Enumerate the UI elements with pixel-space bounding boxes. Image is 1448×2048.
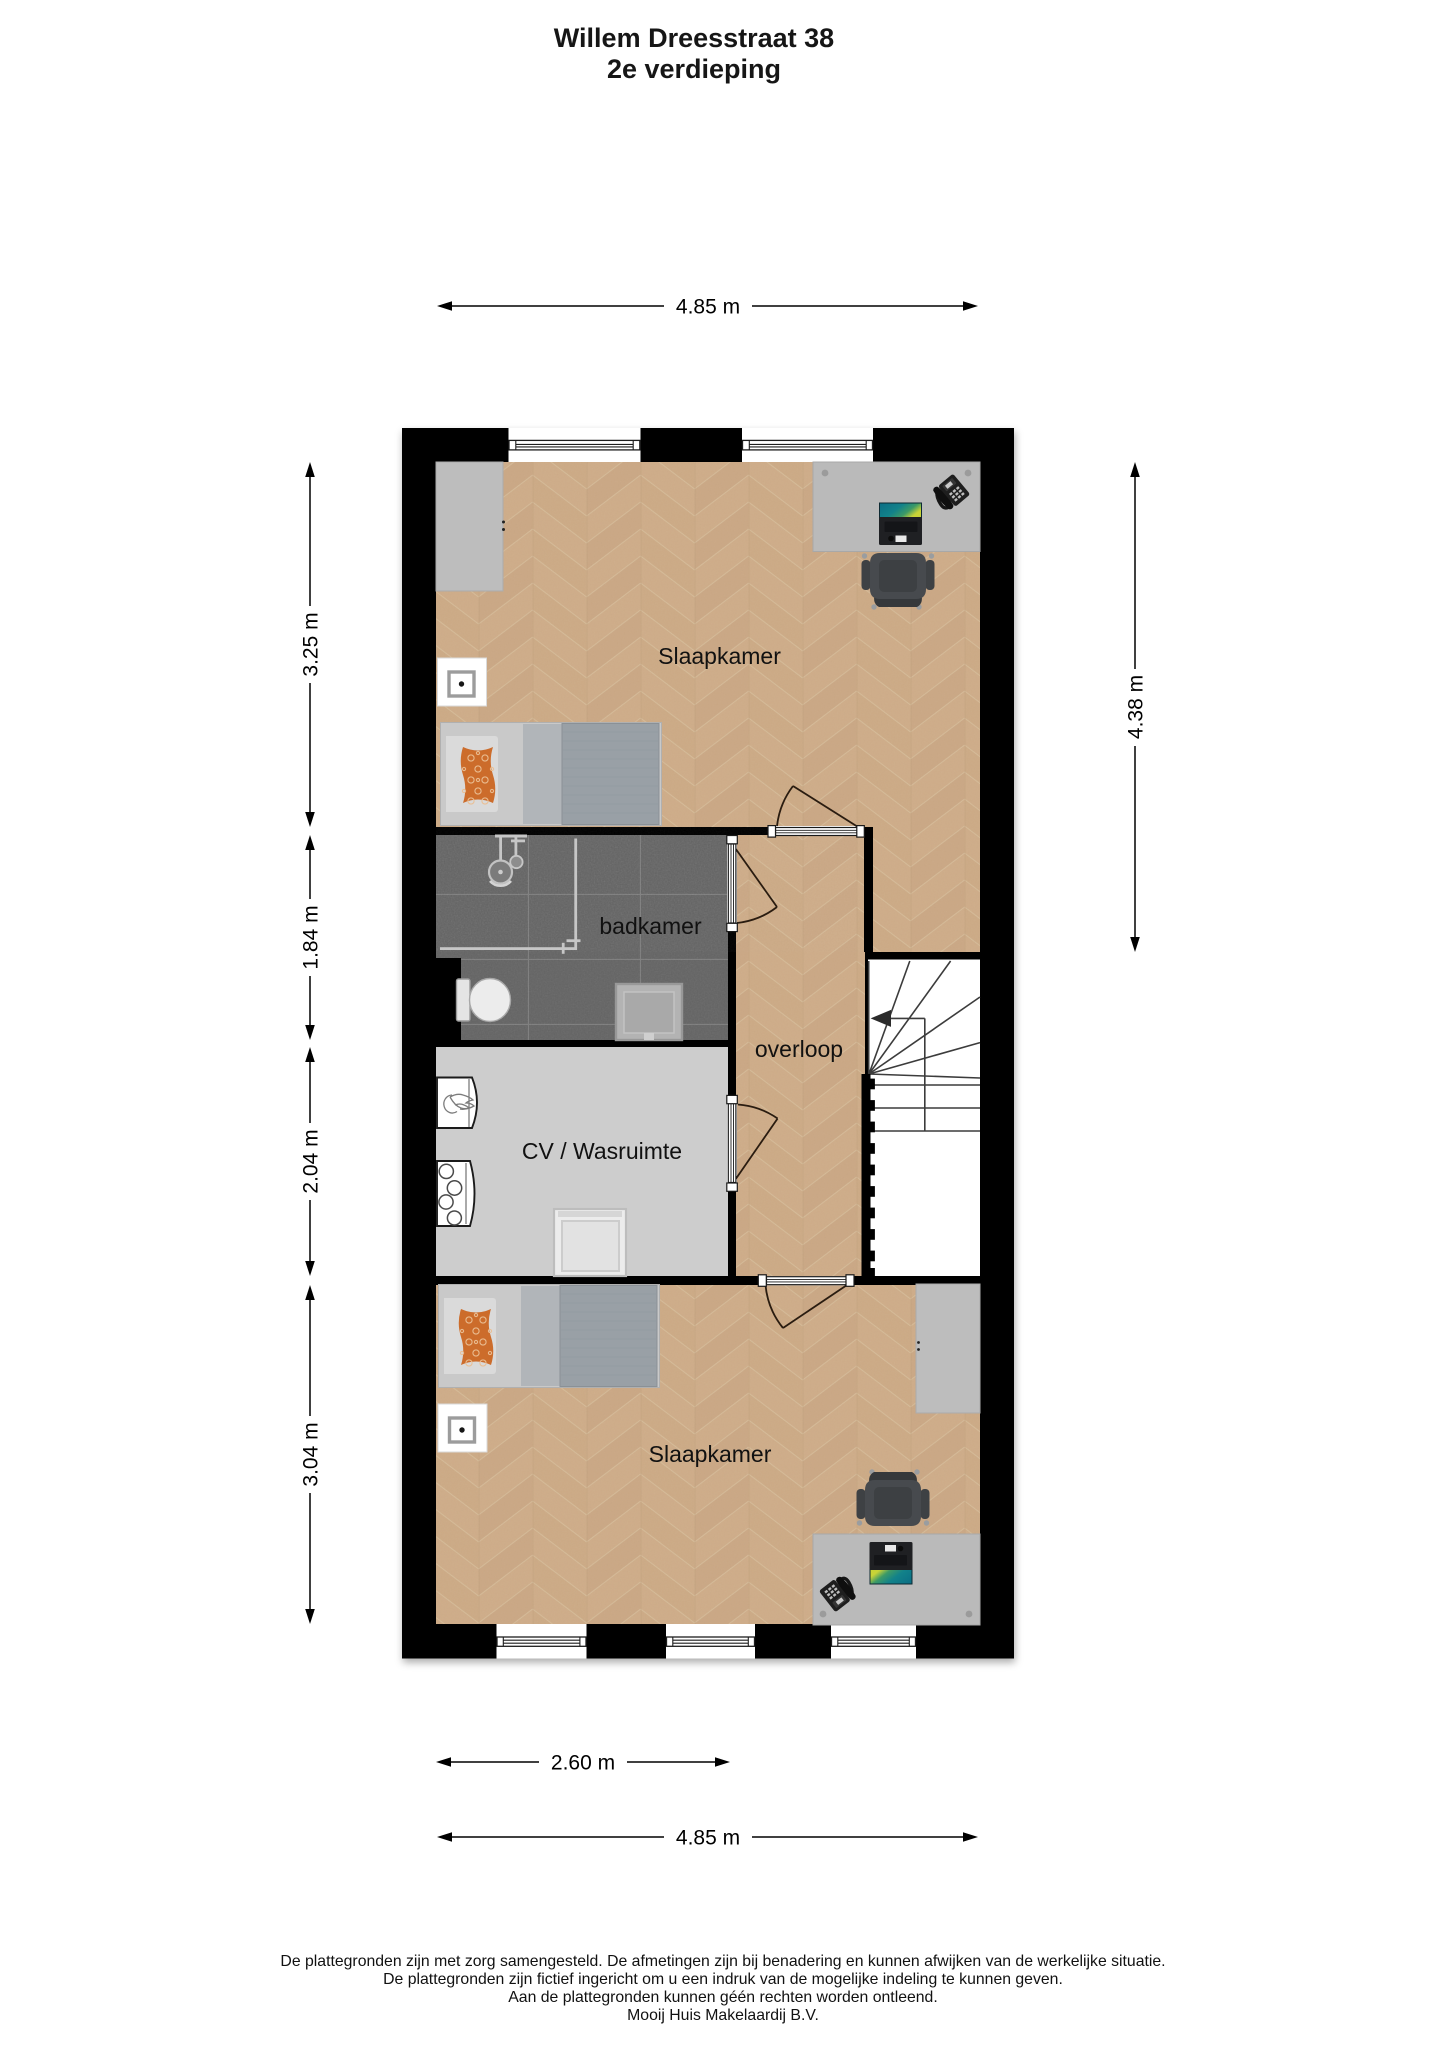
svg-text:Mooij Huis Makelaardij B.V.: Mooij Huis Makelaardij B.V.	[627, 2007, 819, 2024]
svg-text:4.85 m: 4.85 m	[676, 296, 740, 319]
svg-text:De plattegronden zijn met zorg: De plattegronden zijn met zorg samengest…	[280, 1953, 1165, 1970]
svg-text:3.04 m: 3.04 m	[300, 1422, 323, 1486]
svg-text:1.84 m: 1.84 m	[300, 905, 323, 969]
svg-text:3.25 m: 3.25 m	[300, 612, 323, 676]
svg-text:Aan de plattegronden kunnen gé: Aan de plattegronden kunnen géén rechten…	[508, 1989, 938, 2006]
svg-text:De plattegronden zijn fictief: De plattegronden zijn fictief ingericht …	[383, 1971, 1063, 1988]
svg-text:badkamer: badkamer	[599, 913, 702, 939]
svg-text:2.60 m: 2.60 m	[551, 1752, 615, 1775]
svg-text:2e verdieping: 2e verdieping	[607, 54, 781, 84]
svg-text:Slaapkamer: Slaapkamer	[658, 643, 781, 669]
svg-text:Willem Dreesstraat 38: Willem Dreesstraat 38	[554, 23, 834, 53]
svg-text:CV / Wasruimte: CV / Wasruimte	[522, 1138, 682, 1164]
svg-text:Slaapkamer: Slaapkamer	[649, 1441, 772, 1467]
svg-text:4.38 m: 4.38 m	[1125, 675, 1148, 739]
svg-text:overloop: overloop	[755, 1036, 843, 1062]
svg-text:2.04 m: 2.04 m	[300, 1129, 323, 1193]
svg-text:4.85 m: 4.85 m	[676, 1827, 740, 1850]
